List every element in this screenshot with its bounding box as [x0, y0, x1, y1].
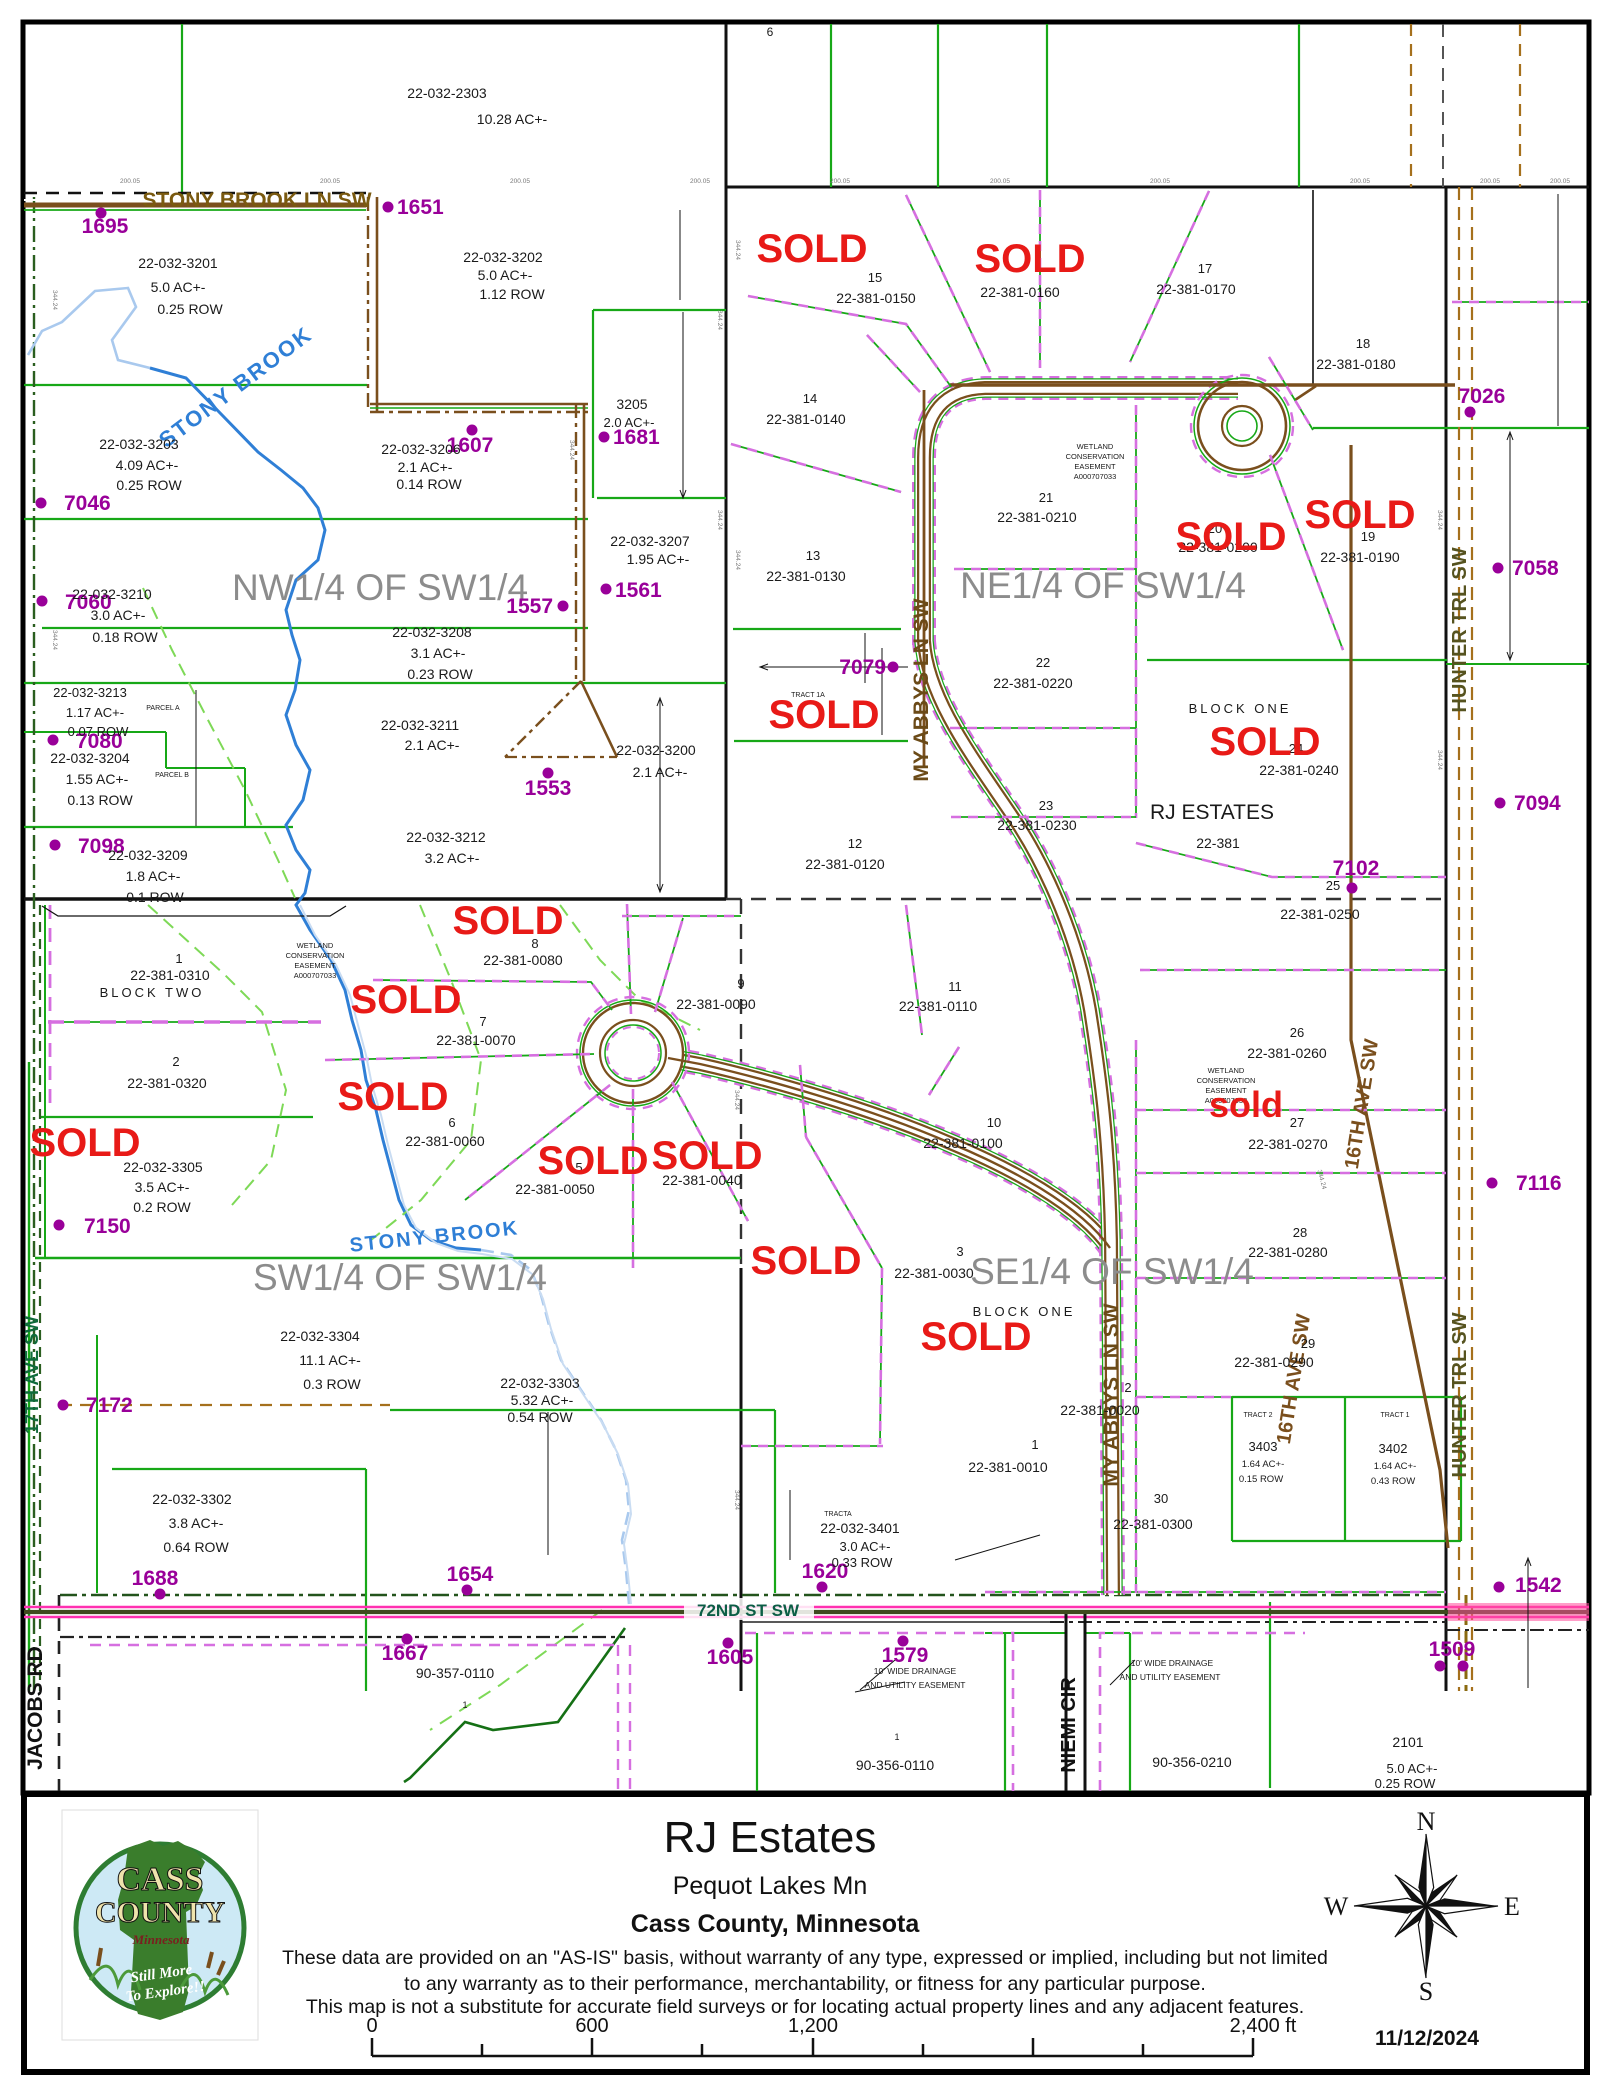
- svg-text:15: 15: [868, 270, 882, 285]
- svg-text:344.24: 344.24: [716, 310, 723, 330]
- svg-text:22-032-3209: 22-032-3209: [108, 847, 188, 863]
- svg-text:17: 17: [1198, 261, 1212, 276]
- svg-text:0.15 ROW: 0.15 ROW: [1239, 1474, 1283, 1485]
- svg-text:SOLD: SOLD: [756, 227, 867, 271]
- svg-text:29: 29: [1301, 1336, 1315, 1351]
- svg-text:0.2 ROW: 0.2 ROW: [133, 1199, 191, 1215]
- svg-text:344.24: 344.24: [733, 1090, 740, 1110]
- svg-text:3.8 AC+-: 3.8 AC+-: [169, 1515, 224, 1531]
- svg-text:TRACT 2: TRACT 2: [1243, 1412, 1272, 1419]
- svg-text:SOLD: SOLD: [920, 1315, 1031, 1359]
- svg-text:TRACT 1: TRACT 1: [1380, 1412, 1409, 1419]
- svg-text:W: W: [1324, 1892, 1349, 1921]
- svg-text:22-381-0210: 22-381-0210: [997, 509, 1077, 525]
- svg-text:22-381-0190: 22-381-0190: [1320, 549, 1400, 565]
- svg-text:SOLD: SOLD: [1175, 515, 1286, 559]
- svg-text:22-381-0230: 22-381-0230: [997, 817, 1077, 833]
- svg-text:22-381-0320: 22-381-0320: [127, 1075, 207, 1091]
- svg-text:22-381-0270: 22-381-0270: [1248, 1136, 1328, 1152]
- svg-text:0.54 ROW: 0.54 ROW: [507, 1409, 573, 1425]
- svg-text:22-381-0130: 22-381-0130: [766, 568, 846, 584]
- svg-text:1.17 AC+-: 1.17 AC+-: [66, 705, 124, 720]
- svg-text:3.2 AC+-: 3.2 AC+-: [425, 850, 480, 866]
- svg-text:2101: 2101: [1392, 1734, 1423, 1750]
- svg-text:200.05: 200.05: [1150, 178, 1170, 185]
- svg-text:9: 9: [737, 976, 744, 991]
- svg-text:0: 0: [366, 2015, 377, 2037]
- svg-text:22-032-3304: 22-032-3304: [280, 1328, 360, 1344]
- svg-text:1.64 AC+-: 1.64 AC+-: [1242, 1459, 1285, 1470]
- svg-text:22-381-0290: 22-381-0290: [1234, 1354, 1314, 1370]
- svg-text:0.1 ROW: 0.1 ROW: [126, 889, 184, 905]
- svg-text:SOLD: SOLD: [651, 1134, 762, 1178]
- svg-text:WETLAND: WETLAND: [297, 941, 334, 950]
- svg-text:1.8 AC+-: 1.8 AC+-: [126, 868, 181, 884]
- svg-text:22-381-0050: 22-381-0050: [515, 1181, 595, 1197]
- svg-text:90-356-0110: 90-356-0110: [856, 1757, 935, 1773]
- svg-text:22-032-3303: 22-032-3303: [500, 1375, 580, 1391]
- svg-text:1: 1: [462, 1700, 467, 1710]
- svg-text:These data are provided on an: These data are provided on an "AS-IS" ba…: [282, 1947, 1328, 1969]
- svg-text:WETLAND: WETLAND: [1208, 1066, 1245, 1075]
- svg-text:7102: 7102: [1333, 857, 1380, 880]
- svg-text:7046: 7046: [64, 492, 111, 515]
- svg-text:2.1 AC+-: 2.1 AC+-: [398, 459, 453, 475]
- svg-text:1553: 1553: [525, 777, 572, 800]
- svg-text:1: 1: [894, 1732, 899, 1742]
- svg-text:344.24: 344.24: [733, 1490, 740, 1510]
- svg-text:5.32 AC+-: 5.32 AC+-: [511, 1392, 574, 1408]
- svg-text:22-032-3212: 22-032-3212: [406, 829, 486, 845]
- svg-text:HUNTER TRL SW: HUNTER TRL SW: [1449, 1312, 1471, 1477]
- svg-text:1: 1: [175, 951, 182, 966]
- svg-text:SOLD: SOLD: [1209, 720, 1320, 764]
- svg-text:3.0 AC+-: 3.0 AC+-: [91, 607, 146, 623]
- svg-text:22-381-0240: 22-381-0240: [1259, 762, 1339, 778]
- svg-text:NE1/4 OF SW1/4: NE1/4 OF SW1/4: [960, 565, 1246, 606]
- svg-text:5.0 AC+-: 5.0 AC+-: [1387, 1761, 1438, 1776]
- svg-text:1579: 1579: [882, 1644, 929, 1667]
- svg-text:sold: sold: [1209, 1084, 1283, 1125]
- svg-text:NW1/4 OF SW1/4: NW1/4 OF SW1/4: [232, 567, 528, 608]
- svg-text:Pequot Lakes Mn: Pequot Lakes Mn: [673, 1872, 868, 1900]
- svg-text:1695: 1695: [82, 215, 129, 238]
- svg-text:to any warranty as to their pe: to any warranty as to their performance,…: [404, 1973, 1206, 1995]
- svg-text:22-032-3206: 22-032-3206: [381, 441, 461, 457]
- svg-text:0.14 ROW: 0.14 ROW: [396, 476, 462, 492]
- svg-text:1.12 ROW: 1.12 ROW: [479, 286, 545, 302]
- svg-text:21: 21: [1039, 490, 1053, 505]
- svg-text:BLOCK ONE: BLOCK ONE: [1189, 701, 1292, 716]
- svg-text:13: 13: [806, 548, 820, 563]
- svg-text:10' WIDE DRAINAGE: 10' WIDE DRAINAGE: [874, 1666, 957, 1676]
- svg-text:22-032-3210: 22-032-3210: [72, 586, 152, 602]
- svg-text:7058: 7058: [1512, 557, 1559, 580]
- svg-text:0.64 ROW: 0.64 ROW: [163, 1539, 229, 1555]
- svg-text:NIEMI CIR: NIEMI CIR: [1058, 1677, 1080, 1773]
- svg-text:22-032-3207: 22-032-3207: [610, 533, 690, 549]
- svg-text:22-032-3204: 22-032-3204: [50, 750, 130, 766]
- svg-text:22-381-0310: 22-381-0310: [130, 967, 210, 983]
- svg-text:SE1/4 OF SW1/4: SE1/4 OF SW1/4: [970, 1251, 1254, 1292]
- svg-text:3: 3: [956, 1244, 963, 1259]
- svg-text:22-032-3401: 22-032-3401: [820, 1520, 900, 1536]
- svg-text:11/12/2024: 11/12/2024: [1375, 2027, 1479, 2050]
- svg-text:10: 10: [987, 1115, 1001, 1130]
- svg-text:1.55 AC+-: 1.55 AC+-: [66, 771, 129, 787]
- svg-text:22-381-0020: 22-381-0020: [1060, 1402, 1140, 1418]
- svg-text:22-381-0140: 22-381-0140: [766, 411, 846, 427]
- svg-text:10.28 AC+-: 10.28 AC+-: [477, 111, 548, 127]
- svg-text:22-381-0080: 22-381-0080: [483, 952, 563, 968]
- svg-text:344.24: 344.24: [734, 550, 741, 570]
- svg-text:28: 28: [1293, 1225, 1307, 1240]
- svg-text:3.5 AC+-: 3.5 AC+-: [135, 1179, 190, 1195]
- svg-text:SOLD: SOLD: [974, 237, 1085, 281]
- svg-text:344.24: 344.24: [1436, 510, 1443, 530]
- svg-text:SOLD: SOLD: [1304, 493, 1415, 537]
- svg-text:1651: 1651: [397, 196, 444, 219]
- svg-text:22-032-3202: 22-032-3202: [463, 249, 543, 265]
- svg-text:0.43 ROW: 0.43 ROW: [1371, 1476, 1415, 1487]
- svg-text:14: 14: [803, 391, 817, 406]
- svg-text:1605: 1605: [707, 1646, 754, 1669]
- svg-text:7150: 7150: [84, 1215, 131, 1238]
- svg-text:22-032-3200: 22-032-3200: [616, 742, 696, 758]
- svg-text:2.1 AC+-: 2.1 AC+-: [633, 764, 688, 780]
- svg-text:EASEMENT: EASEMENT: [294, 961, 336, 970]
- svg-text:22-381-0070: 22-381-0070: [436, 1032, 516, 1048]
- svg-text:72ND ST SW: 72ND ST SW: [697, 1601, 800, 1620]
- svg-text:STONY BROOK LN SW: STONY BROOK LN SW: [142, 189, 371, 212]
- svg-text:27: 27: [1290, 1115, 1304, 1130]
- svg-text:3.1 AC+-: 3.1 AC+-: [411, 645, 466, 661]
- svg-text:7079: 7079: [839, 656, 886, 679]
- svg-text:22-381-0090: 22-381-0090: [676, 996, 756, 1012]
- svg-text:12: 12: [848, 836, 862, 851]
- svg-text:CONSERVATION: CONSERVATION: [286, 951, 345, 960]
- svg-text:COUNTY: COUNTY: [95, 1896, 225, 1929]
- svg-text:3403: 3403: [1249, 1439, 1278, 1454]
- svg-text:0.25 ROW: 0.25 ROW: [1375, 1776, 1436, 1791]
- svg-text:0.25 ROW: 0.25 ROW: [157, 301, 223, 317]
- svg-text:200.05: 200.05: [1480, 178, 1500, 185]
- svg-text:22-381-0300: 22-381-0300: [1113, 1516, 1193, 1532]
- svg-text:200.05: 200.05: [320, 178, 340, 185]
- svg-text:22-381: 22-381: [1196, 835, 1240, 851]
- svg-text:1: 1: [1031, 1437, 1038, 1452]
- svg-text:344.24: 344.24: [51, 290, 58, 310]
- svg-text:22-381-0030: 22-381-0030: [894, 1265, 974, 1281]
- svg-text:6: 6: [767, 25, 774, 39]
- svg-text:E: E: [1504, 1892, 1520, 1921]
- svg-text:22-381-0280: 22-381-0280: [1248, 1244, 1328, 1260]
- svg-text:3205: 3205: [616, 396, 647, 412]
- svg-text:MY ABBYS LN SW: MY ABBYS LN SW: [910, 598, 933, 781]
- svg-text:22-381-0120: 22-381-0120: [805, 856, 885, 872]
- svg-text:SOLD: SOLD: [768, 693, 879, 737]
- svg-text:0.3 ROW: 0.3 ROW: [303, 1376, 361, 1392]
- svg-text:0.18 ROW: 0.18 ROW: [92, 629, 158, 645]
- svg-text:PARCEL A: PARCEL A: [146, 705, 180, 712]
- svg-text:22-032-3213: 22-032-3213: [53, 685, 127, 700]
- svg-text:SW1/4 OF SW1/4: SW1/4 OF SW1/4: [253, 1257, 547, 1298]
- svg-text:7172: 7172: [86, 1394, 133, 1417]
- svg-text:7094: 7094: [1514, 792, 1561, 815]
- svg-text:0.25 ROW: 0.25 ROW: [116, 477, 182, 493]
- svg-text:344.24: 344.24: [734, 240, 741, 260]
- svg-text:22-381-0160: 22-381-0160: [980, 284, 1060, 300]
- svg-text:SOLD: SOLD: [29, 1121, 140, 1165]
- svg-text:22-381-0180: 22-381-0180: [1316, 356, 1396, 372]
- svg-text:1561: 1561: [615, 579, 662, 602]
- svg-text:22-381-0250: 22-381-0250: [1280, 906, 1360, 922]
- svg-text:90-357-0110: 90-357-0110: [416, 1665, 495, 1681]
- svg-text:1,200: 1,200: [788, 2015, 838, 2037]
- svg-text:HUNTER TRL SW: HUNTER TRL SW: [1449, 547, 1471, 712]
- svg-text:RJ ESTATES: RJ ESTATES: [1150, 801, 1274, 824]
- svg-text:22-381-0150: 22-381-0150: [836, 290, 916, 306]
- svg-text:SOLD: SOLD: [537, 1139, 648, 1183]
- svg-text:200.05: 200.05: [830, 178, 850, 185]
- svg-text:22-032-3211: 22-032-3211: [381, 717, 460, 733]
- svg-text:30: 30: [1154, 1491, 1168, 1506]
- svg-text:A000707033: A000707033: [294, 971, 337, 980]
- svg-text:JACOBS RD: JACOBS RD: [24, 1646, 47, 1770]
- svg-text:17TH AVE SW: 17TH AVE SW: [22, 1316, 42, 1434]
- svg-text:SOLD: SOLD: [452, 899, 563, 943]
- svg-text:26: 26: [1290, 1025, 1304, 1040]
- svg-text:1557: 1557: [506, 595, 553, 618]
- svg-text:90-356-0210: 90-356-0210: [1152, 1754, 1232, 1770]
- svg-text:7116: 7116: [1516, 1172, 1562, 1195]
- svg-text:11.1 AC+-: 11.1 AC+-: [299, 1352, 361, 1368]
- svg-text:CASS: CASS: [117, 1861, 204, 1898]
- svg-text:200.05: 200.05: [690, 178, 710, 185]
- svg-text:22-381-0100: 22-381-0100: [923, 1135, 1003, 1151]
- svg-text:344.24: 344.24: [1436, 750, 1443, 770]
- svg-text:BLOCK TWO: BLOCK TWO: [100, 985, 205, 1000]
- svg-text:MY ABBYS LN SW: MY ABBYS LN SW: [1100, 1303, 1123, 1486]
- svg-text:SOLD: SOLD: [337, 1075, 448, 1119]
- svg-text:0.07 ROW: 0.07 ROW: [68, 724, 129, 739]
- svg-text:344.24: 344.24: [716, 510, 723, 530]
- svg-text:2: 2: [1124, 1380, 1131, 1395]
- svg-text:200.05: 200.05: [1350, 178, 1370, 185]
- svg-text:0.23 ROW: 0.23 ROW: [407, 666, 473, 682]
- svg-text:4.09 AC+-: 4.09 AC+-: [116, 457, 179, 473]
- svg-text:PARCEL B: PARCEL B: [155, 772, 189, 779]
- svg-text:22-032-2303: 22-032-2303: [407, 85, 487, 101]
- svg-text:11: 11: [948, 979, 962, 994]
- svg-text:2.0 AC+-: 2.0 AC+-: [604, 415, 655, 430]
- svg-text:200.05: 200.05: [120, 178, 140, 185]
- svg-text:200.05: 200.05: [1550, 178, 1570, 185]
- svg-text:22-381-0110: 22-381-0110: [899, 998, 978, 1014]
- svg-text:0.33 ROW: 0.33 ROW: [832, 1555, 893, 1570]
- svg-text:344.24: 344.24: [51, 630, 58, 650]
- svg-text:22-032-3203: 22-032-3203: [99, 436, 179, 452]
- svg-text:AND UTILITY EASEMENT: AND UTILITY EASEMENT: [1120, 1672, 1221, 1682]
- svg-text:EASEMENT: EASEMENT: [1074, 462, 1116, 471]
- svg-text:22-032-3201: 22-032-3201: [138, 255, 218, 271]
- svg-text:1667: 1667: [382, 1642, 429, 1665]
- svg-text:18: 18: [1356, 336, 1370, 351]
- svg-text:2: 2: [172, 1054, 179, 1069]
- svg-text:23: 23: [1039, 798, 1053, 813]
- svg-text:N: N: [1417, 1807, 1436, 1836]
- svg-text:1542: 1542: [1515, 1574, 1562, 1597]
- svg-text:25: 25: [1326, 878, 1340, 893]
- svg-text:22-032-3208: 22-032-3208: [392, 624, 472, 640]
- svg-text:22-381-0170: 22-381-0170: [1156, 281, 1236, 297]
- svg-text:3402: 3402: [1379, 1441, 1408, 1456]
- svg-text:7026: 7026: [1459, 385, 1506, 408]
- svg-text:A000707033: A000707033: [1074, 472, 1117, 481]
- svg-text:Minnesota: Minnesota: [131, 1932, 190, 1947]
- svg-text:AND UTILITY EASEMENT: AND UTILITY EASEMENT: [865, 1680, 966, 1690]
- svg-text:RJ Estates: RJ Estates: [664, 1813, 877, 1862]
- svg-text:1.95 AC+-: 1.95 AC+-: [627, 551, 690, 567]
- svg-text:SOLD: SOLD: [350, 978, 461, 1022]
- svg-text:600: 600: [575, 2015, 608, 2037]
- svg-text:22-032-3302: 22-032-3302: [152, 1491, 232, 1507]
- svg-text:0.13 ROW: 0.13 ROW: [67, 792, 133, 808]
- svg-text:5.0 AC+-: 5.0 AC+-: [151, 279, 206, 295]
- svg-text:7: 7: [479, 1014, 486, 1029]
- svg-text:200.05: 200.05: [990, 178, 1010, 185]
- svg-text:1688: 1688: [132, 1567, 179, 1590]
- svg-text:WETLAND: WETLAND: [1077, 442, 1114, 451]
- svg-text:22-381-0260: 22-381-0260: [1247, 1045, 1327, 1061]
- svg-text:TRACTA: TRACTA: [824, 1511, 852, 1518]
- svg-text:1654: 1654: [447, 1563, 494, 1586]
- svg-text:22-381-0010: 22-381-0010: [968, 1459, 1048, 1475]
- svg-text:344.24: 344.24: [568, 440, 575, 460]
- svg-text:10' WIDE DRAINAGE: 10' WIDE DRAINAGE: [1131, 1658, 1214, 1668]
- svg-text:2,400 ft: 2,400 ft: [1230, 2015, 1297, 2037]
- svg-text:CONSERVATION: CONSERVATION: [1066, 452, 1125, 461]
- svg-text:200.05: 200.05: [510, 178, 530, 185]
- svg-text:SOLD: SOLD: [750, 1239, 861, 1283]
- svg-text:1509: 1509: [1429, 1638, 1476, 1661]
- svg-text:3.0 AC+-: 3.0 AC+-: [840, 1539, 891, 1554]
- svg-text:S: S: [1419, 1977, 1433, 2006]
- svg-text:5.0 AC+-: 5.0 AC+-: [478, 267, 533, 283]
- svg-text:6: 6: [448, 1115, 455, 1130]
- svg-text:22-381-0060: 22-381-0060: [405, 1133, 485, 1149]
- svg-text:22-381-0220: 22-381-0220: [993, 675, 1073, 691]
- svg-text:1.64 AC+-: 1.64 AC+-: [1374, 1461, 1417, 1472]
- svg-text:22: 22: [1036, 655, 1050, 670]
- svg-text:Cass County, Minnesota: Cass County, Minnesota: [631, 1910, 921, 1938]
- svg-text:2.1 AC+-: 2.1 AC+-: [405, 737, 460, 753]
